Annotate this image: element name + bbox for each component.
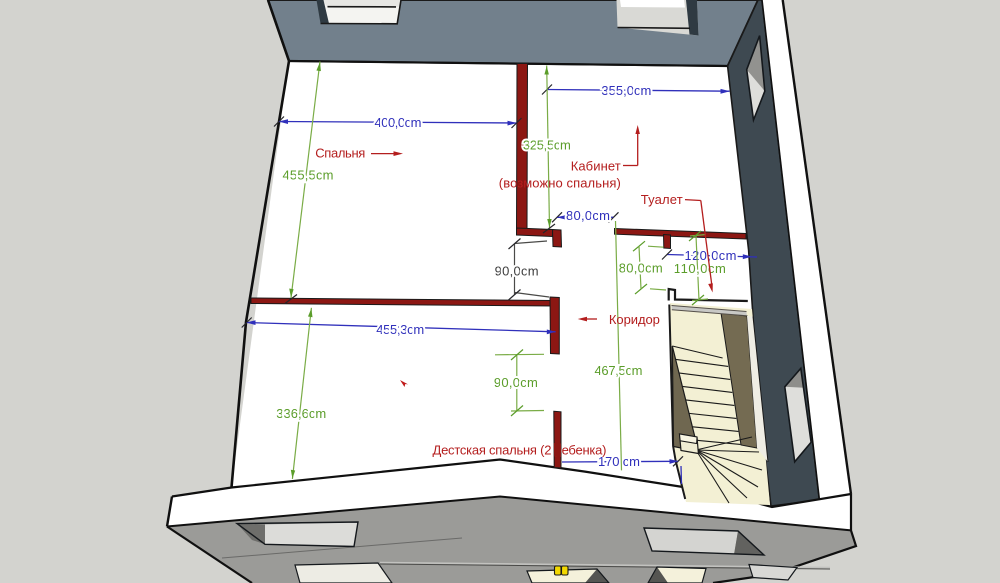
- svg-text:Туалет: Туалет: [641, 192, 683, 207]
- svg-text:455,3cm: 455,3cm: [376, 322, 424, 337]
- svg-text:Коридор: Коридор: [609, 312, 660, 327]
- svg-text:325,5cm: 325,5cm: [523, 137, 571, 152]
- svg-text:Кабинет: Кабинет: [571, 159, 621, 174]
- svg-text:355,0cm: 355,0cm: [601, 83, 651, 98]
- svg-text:467,5cm: 467,5cm: [595, 363, 643, 378]
- svg-text:110,0cm: 110,0cm: [674, 261, 726, 276]
- svg-text:80,0cm: 80,0cm: [566, 208, 610, 223]
- svg-text:Спальня: Спальня: [315, 146, 365, 161]
- svg-text:Дестская спальня (2 ребенка): Дестская спальня (2 ребенка): [433, 443, 607, 458]
- svg-text:336,6cm: 336,6cm: [276, 406, 326, 421]
- svg-text:400,0cm: 400,0cm: [375, 115, 422, 130]
- svg-text:90,0cm: 90,0cm: [495, 263, 539, 278]
- svg-text:455,5cm: 455,5cm: [283, 168, 334, 183]
- svg-text:90,0cm: 90,0cm: [494, 375, 538, 390]
- svg-text:(возможно спальня): (возможно спальня): [499, 176, 621, 191]
- svg-text:80,0cm: 80,0cm: [619, 261, 663, 276]
